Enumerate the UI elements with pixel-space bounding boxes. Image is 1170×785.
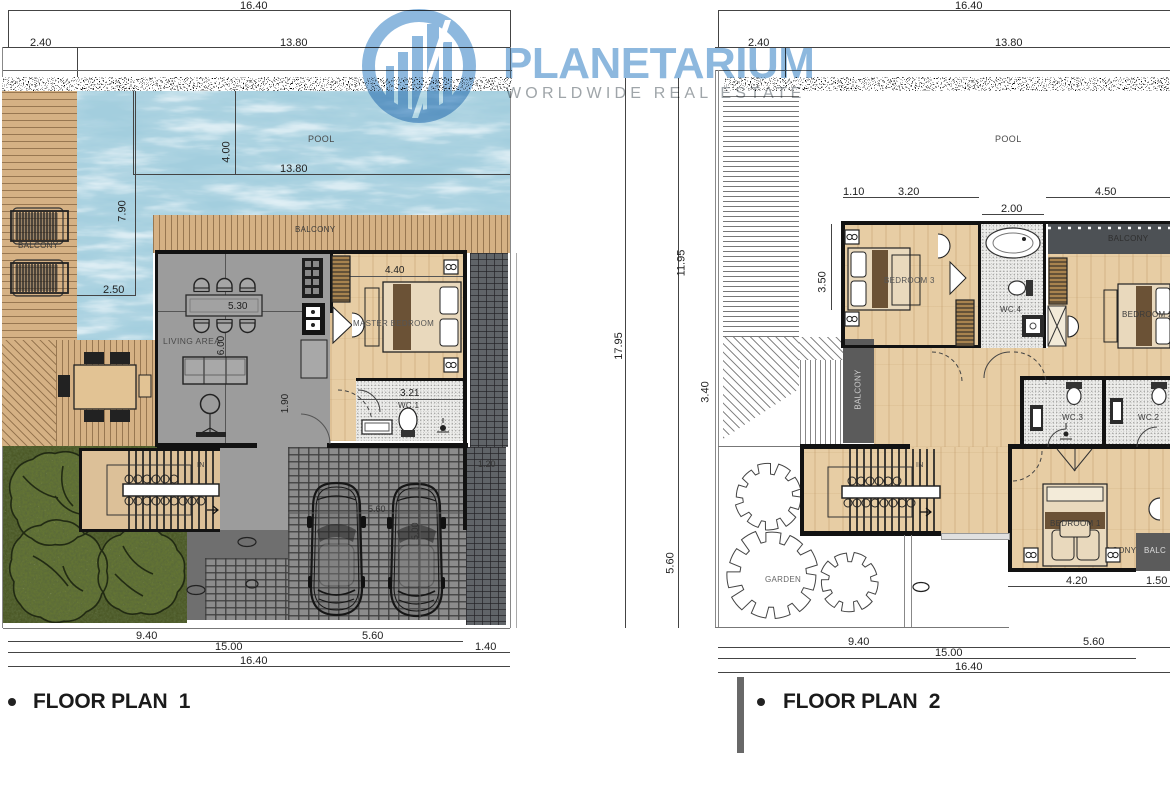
svg-text:5.00: 5.00 [410,522,420,540]
svg-text:1.20: 1.20 [478,459,496,469]
svg-text:WORLDWIDE REAL ESTATE: WORLDWIDE REAL ESTATE [506,85,805,102]
svg-text:PLANETARIUM: PLANETARIUM [503,39,814,88]
